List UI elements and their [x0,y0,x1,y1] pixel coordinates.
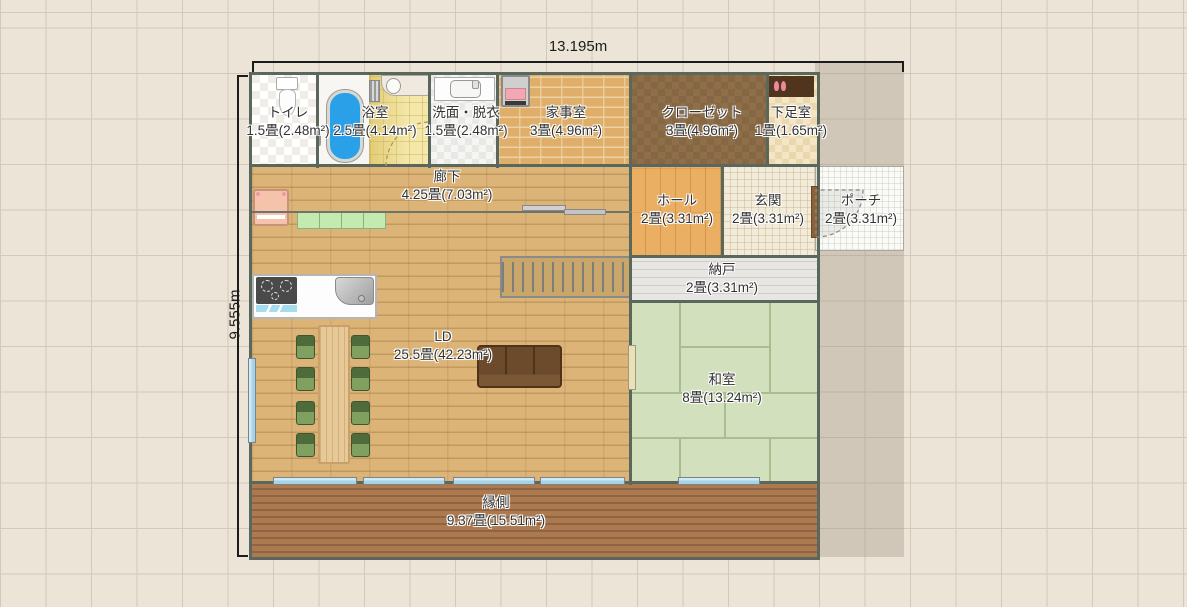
room-name: 納戸 [686,261,758,279]
entrance-door[interactable] [811,186,818,238]
wall [630,300,817,303]
burner-icon [261,280,273,292]
room-label-veranda: 縁側 9.37畳(15.51m²) [447,494,545,530]
room-name: 廊下 [402,168,493,186]
room-label-hall: ホール 2畳(3.31m²) [641,192,713,228]
dimension-tick [902,61,904,72]
burner-icon [271,292,279,300]
room-size: 8畳(13.24m²) [682,389,762,407]
window[interactable] [453,477,535,485]
fridge-dot [256,192,260,196]
washing-machine-base [505,101,526,105]
washing-machine-door-icon [505,88,526,100]
room-size: 3畳(4.96m²) [662,122,743,140]
window[interactable] [363,477,445,485]
room-label-washroom: 洗面・脱衣 1.5畳(2.48m²) [424,104,507,140]
chair[interactable] [351,401,370,425]
slipper-icon [781,81,786,91]
faucet-icon [472,80,479,89]
room-label-porch: ポーチ 2畳(3.31m²) [825,192,897,228]
sliding-door[interactable] [564,209,606,215]
site-shade-strip [815,62,904,557]
room-size: 2畳(3.31m²) [686,279,758,297]
burner-icon [280,280,292,292]
chair[interactable] [351,367,370,391]
room-label-storage: 納戸 2畳(3.31m²) [686,261,758,297]
width-dimension-label: 13.195m [549,38,607,55]
room-size: 1畳(1.65m²) [755,122,827,140]
room-size: 1.5畳(2.48m²) [246,122,329,140]
dimension-tick [252,61,254,72]
room-size: 2畳(3.31m²) [732,210,804,228]
wall [252,164,817,167]
wall [721,166,724,257]
room-label-closet: クローゼット 3畳(4.96m²) [662,104,743,140]
room-label-utility: 家事室 3畳(4.96m²) [530,104,602,140]
room-name: ポーチ [825,192,897,210]
room-name: クローゼット [662,104,743,122]
room-size: 2畳(3.31m²) [825,210,897,228]
window[interactable] [678,477,760,485]
grill-icon [256,305,297,312]
tatami-joint [679,346,771,348]
fridge-dot [282,192,286,196]
dimension-tick [237,555,248,557]
room-name: 縁側 [447,494,545,512]
chair[interactable] [351,433,370,457]
drain-icon [358,295,365,302]
japanese-room-door[interactable] [628,345,636,390]
chair[interactable] [351,335,370,359]
room-name: 洗面・脱衣 [424,104,507,122]
room-name: LD [394,328,492,346]
slipper-icon [774,81,779,91]
width-dimension-line [252,61,904,63]
window[interactable] [273,477,357,485]
tatami-joint [769,437,771,485]
room-size: 2畳(3.31m²) [641,210,713,228]
room-label-toilet: トイレ 1.5畳(2.48m²) [246,104,329,140]
chair[interactable] [296,433,315,457]
bath-radiator-icon[interactable] [369,80,380,102]
wall [630,255,817,258]
room-size: 3畳(4.96m²) [530,122,602,140]
sliding-door[interactable] [522,205,566,211]
room-size: 4.25畳(7.03m²) [402,186,493,204]
dimension-tick [237,75,248,77]
chair[interactable] [296,335,315,359]
room-label-bathroom: 浴室 2.5畳(4.14m²) [333,104,416,140]
chair[interactable] [296,401,315,425]
room-name: 浴室 [333,104,416,122]
room-size: 9.37畳(15.51m²) [447,512,545,530]
room-name: 玄関 [732,192,804,210]
bath-basin-icon [386,78,401,94]
room-size: 2.5畳(4.14m²) [333,122,416,140]
window[interactable] [248,358,256,443]
floorplan-canvas: トイレ 1.5畳(2.48m²) 浴室 2.5畳(4.14m²) 洗面・脱衣 1… [0,0,1187,607]
wall [629,75,632,485]
room-label-entrance: 玄関 2畳(3.31m²) [732,192,804,228]
stairs[interactable] [500,256,632,298]
room-name: 家事室 [530,104,602,122]
tatami-joint [630,437,817,439]
room-name: ホール [641,192,713,210]
window[interactable] [540,477,625,485]
height-dimension-label: 9.555m [227,289,244,339]
room-name: 和室 [682,371,762,389]
sink-icon[interactable] [335,277,374,305]
room-label-hallway: 廊下 4.25畳(7.03m²) [402,168,493,204]
room-label-living-dining: LD 25.5畳(42.23m²) [394,328,492,364]
room-size: 1.5畳(2.48m²) [424,122,507,140]
room-size: 25.5畳(42.23m²) [394,346,492,364]
room-name: 下足室 [755,104,827,122]
room-label-japanese-room: 和室 8畳(13.24m²) [682,371,762,407]
fridge-handle [257,215,285,219]
room-label-shoe-room: 下足室 1畳(1.65m²) [755,104,827,140]
height-dimension-line [237,75,239,557]
dining-table[interactable] [318,325,350,464]
room-name: トイレ [246,104,329,122]
kitchen-cabinet-icon[interactable] [297,211,386,229]
chair[interactable] [296,367,315,391]
